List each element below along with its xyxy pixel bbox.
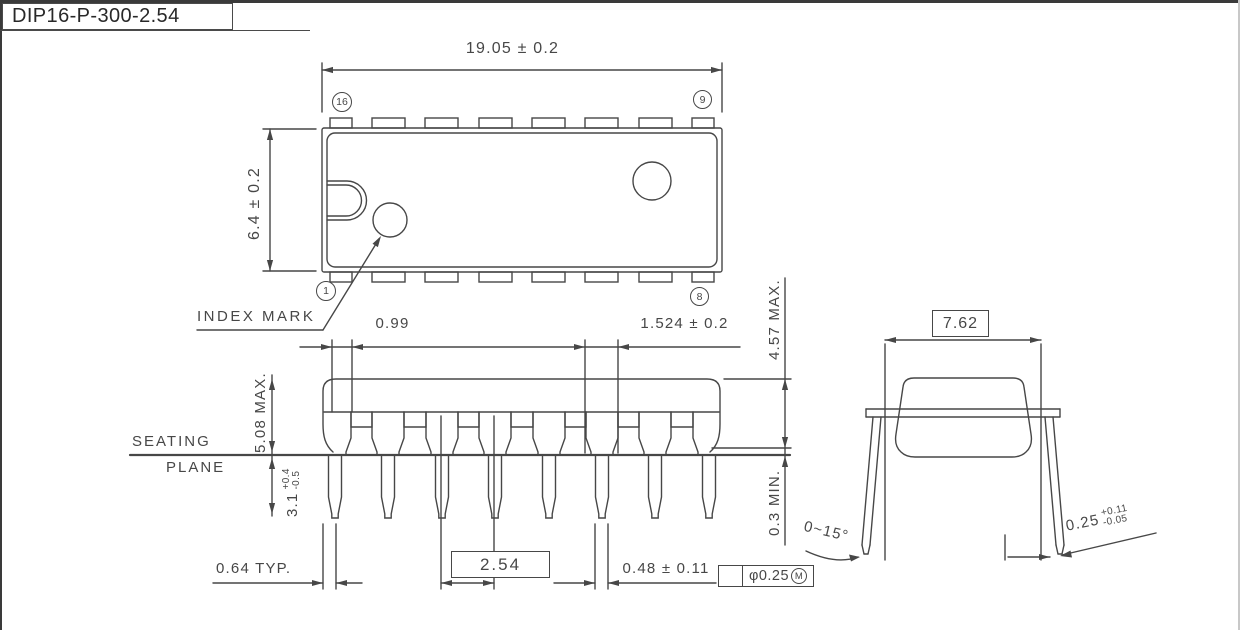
pin-1-balloon: 1 [316, 281, 336, 301]
dim-standoff: 0.3 MIN. [766, 470, 783, 536]
top-view-body-outer [322, 128, 722, 272]
lead-length-tolerance: +0.4 -0.5 [282, 468, 302, 489]
position-symbol-cell [719, 566, 743, 586]
drawing-linework [0, 0, 1240, 630]
true-position-tolerance-frame: φ0.25 M [718, 565, 814, 587]
pin-9-balloon: 9 [693, 90, 712, 109]
package-drawing-page: DIP16-P-300-2.54 [0, 0, 1240, 630]
seating-plane-label-1: SEATING [132, 433, 211, 450]
index-mark-circle [373, 203, 407, 237]
dim-body-length: 19.05 ± 0.2 [420, 40, 605, 58]
dim-lead-width: 0.48 ± 0.11 [616, 560, 716, 577]
dim-lead-offset: 0.99 [365, 315, 420, 332]
dim-pitch-box: 2.54 [451, 551, 550, 578]
tolerance-diameter: φ0.25 [749, 568, 789, 584]
index-mark-label: INDEX MARK [197, 308, 315, 325]
dim-row-spacing-box: 7.62 [932, 310, 989, 337]
front-view-body [323, 379, 720, 452]
seating-plane-label-2: PLANE [166, 459, 225, 476]
index-leader-arrow [373, 236, 382, 247]
dim-body-height: 4.57 MAX. [766, 279, 783, 360]
top-view-body-inner [327, 133, 717, 267]
dim-shoulder-width: 1.524 ± 0.2 [632, 315, 737, 332]
dim-seated-height: 5.08 MAX. [252, 372, 269, 453]
pin1-end-notch [327, 181, 367, 220]
top-view-drawing [197, 63, 722, 330]
dim-lead-tip-width: 0.64 TYP. [216, 560, 291, 577]
mmc-modifier-icon: M [791, 568, 807, 584]
ejector-pin-mark-circle [633, 162, 671, 200]
dim-body-width: 6.4 ± 0.2 [246, 167, 264, 240]
dim-lead-length: 3.1 +0.4 -0.5 [282, 468, 302, 517]
pin-8-balloon: 8 [690, 287, 709, 306]
pin-16-balloon: 16 [332, 92, 352, 112]
